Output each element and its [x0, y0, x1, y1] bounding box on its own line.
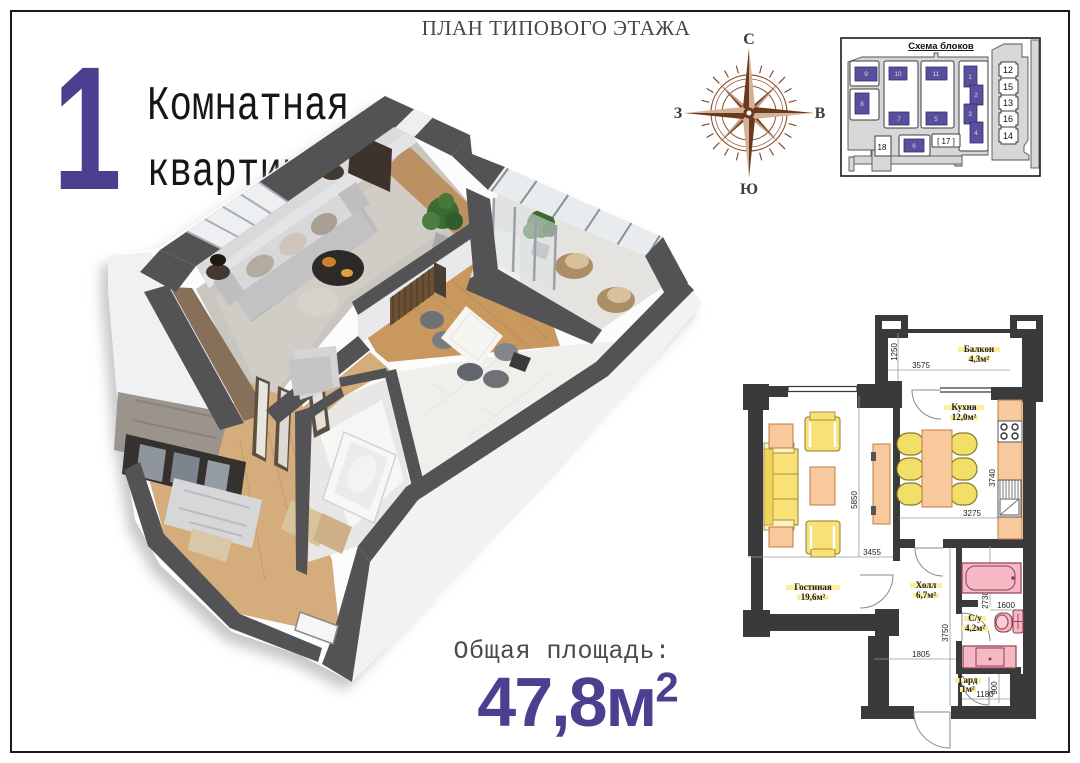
svg-text:7: 7: [897, 116, 901, 123]
svg-text:Гостиная: Гостиная: [794, 582, 832, 592]
svg-text:5850: 5850: [850, 491, 859, 509]
svg-text:11: 11: [933, 71, 940, 78]
svg-text:Балкон: Балкон: [964, 344, 994, 354]
svg-text:1805: 1805: [912, 650, 930, 659]
svg-text:1м²: 1м²: [961, 684, 975, 694]
svg-text:10: 10: [894, 71, 902, 78]
svg-text:12,0м²: 12,0м²: [952, 412, 977, 422]
svg-text:14: 14: [1003, 131, 1013, 141]
svg-text:Кухня: Кухня: [951, 402, 976, 412]
svg-text:16: 16: [1003, 114, 1013, 124]
svg-text:Ю: Ю: [740, 181, 758, 198]
svg-text:3: 3: [968, 111, 972, 118]
svg-text:19,6м²: 19,6м²: [801, 592, 826, 602]
svg-text:6,7м²: 6,7м²: [916, 590, 936, 600]
svg-text:1250: 1250: [890, 343, 899, 361]
svg-text:4,2м²: 4,2м²: [965, 623, 985, 633]
svg-text:Холл: Холл: [916, 580, 937, 590]
svg-text:С/у: С/у: [968, 613, 982, 623]
svg-text:5: 5: [934, 116, 938, 123]
svg-text:18: 18: [878, 143, 887, 152]
svg-text:3455: 3455: [863, 548, 881, 557]
svg-text:[ 17 ]: [ 17 ]: [937, 137, 955, 146]
svg-text:В: В: [815, 105, 826, 122]
svg-text:З: З: [674, 105, 683, 122]
svg-text:3275: 3275: [963, 509, 981, 518]
svg-text:1600: 1600: [997, 601, 1015, 610]
svg-text:4,3м²: 4,3м²: [969, 354, 989, 364]
svg-text:4: 4: [974, 130, 978, 137]
svg-text:2: 2: [974, 92, 978, 99]
svg-text:9: 9: [864, 71, 868, 78]
svg-text:13: 13: [1003, 98, 1013, 108]
svg-text:12: 12: [1003, 65, 1013, 75]
svg-text:900: 900: [990, 681, 999, 695]
svg-text:Схема блоков: Схема блоков: [908, 41, 974, 52]
svg-text:3750: 3750: [941, 624, 950, 642]
svg-text:3575: 3575: [912, 361, 930, 370]
svg-text:С: С: [743, 31, 755, 48]
svg-text:8: 8: [860, 101, 864, 108]
svg-text:3740: 3740: [988, 469, 997, 487]
svg-text:15: 15: [1003, 82, 1013, 92]
svg-text:6: 6: [912, 143, 916, 150]
svg-text:1: 1: [968, 74, 972, 81]
